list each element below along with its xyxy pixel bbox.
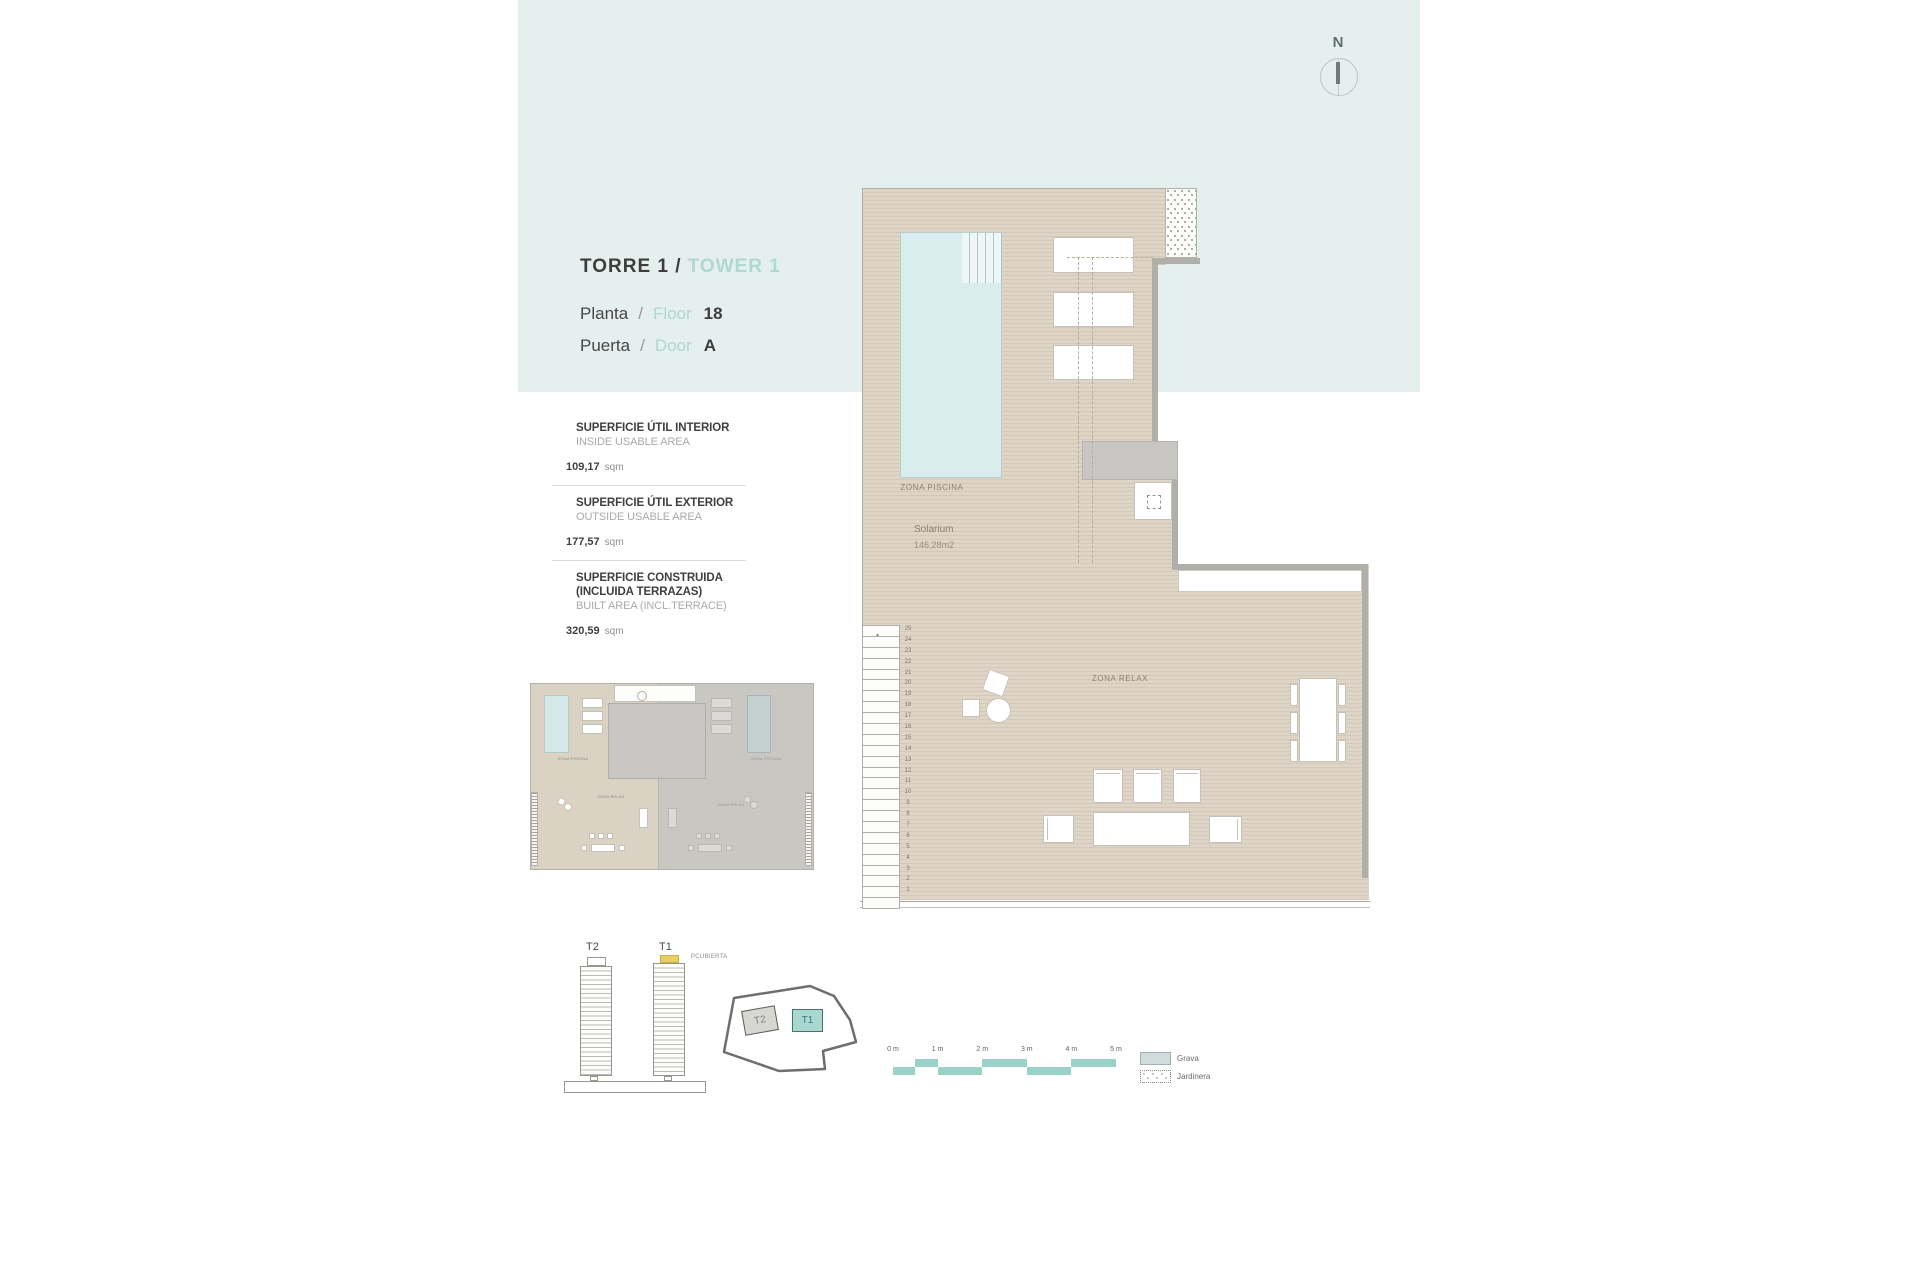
divider: [552, 485, 746, 486]
area-title-en: BUILT AREA (INCL.TERRACE): [552, 599, 746, 613]
wall: [1172, 480, 1178, 564]
page-title: TORRE 1 /TOWER 1: [580, 256, 781, 278]
ruler-number: 20: [901, 680, 915, 686]
mini-dining-table: [668, 808, 677, 828]
site-t2-label: T2: [753, 1014, 766, 1027]
sun-lounger: [1053, 345, 1134, 380]
ruler-row: 7: [863, 822, 899, 833]
ruler-number: 4: [901, 855, 915, 861]
floor-word: Floor: [653, 304, 692, 323]
deck-bottom-edge: [860, 901, 1370, 908]
ruler-row: 18: [863, 702, 899, 713]
compass-needle-head: [1336, 62, 1340, 84]
scale-label: 1 m: [932, 1046, 944, 1053]
scale-block: [982, 1059, 1027, 1067]
area-number: 320,59: [566, 625, 600, 637]
floor-value: 18: [704, 304, 723, 323]
title-block: TORRE 1 /TOWER 1 Planta/Floor18 Puerta/D…: [580, 256, 781, 356]
area-title-en: OUTSIDE USABLE AREA: [552, 510, 746, 524]
tower-t2-elevation: [580, 966, 612, 1076]
ruler-number: 15: [901, 735, 915, 741]
ruler-number: 5: [901, 844, 915, 850]
mini-armchair: [589, 833, 595, 839]
scale-bar: 0 m1 m2 m3 m4 m5 m: [885, 1046, 1130, 1080]
area-section-exterior: SUPERFICIE ÚTIL EXTERIOR OUTSIDE USABLE …: [552, 496, 746, 550]
puerta-label: Puerta: [580, 336, 630, 355]
floorplan-sheet: N TORRE 1 /TOWER 1 Planta/Floor18 Puerta…: [0, 0, 1920, 1280]
mini-pool-a: [544, 695, 569, 753]
mini-armchair: [705, 833, 711, 839]
ruler-row: 22: [863, 659, 899, 670]
wall: [1152, 264, 1158, 441]
ruler-number: 22: [901, 659, 915, 665]
mini-armchair: [598, 833, 604, 839]
dining-chair: [1290, 740, 1298, 762]
outdoor-shower: [1134, 482, 1172, 520]
tower-t2-label: T2: [586, 941, 599, 953]
mini-zona-relax-label: ZONA RELAX: [706, 802, 756, 807]
slash: /: [638, 304, 643, 323]
ruler-row: 21: [863, 670, 899, 681]
round-table: [986, 698, 1011, 723]
chair-back: [1136, 773, 1159, 774]
lounge-seat: [1043, 815, 1074, 843]
area-unit: sqm: [605, 462, 624, 473]
ruler-row: 12: [863, 768, 899, 779]
ruler-row: [863, 898, 899, 908]
site-tower-t1: T1: [792, 1009, 823, 1032]
stair-ruler: ▲ 25242322212019181716151413121110987654…: [862, 625, 900, 909]
ruler-row: 10: [863, 789, 899, 800]
legend-label-jardinera: Jardinera: [1177, 1072, 1210, 1081]
area-title-es2: (INCLUIDA TERRAZAS): [552, 585, 746, 599]
area-value: 177,57sqm: [552, 532, 746, 550]
ruler-row: 15: [863, 735, 899, 746]
ruler-row: 19: [863, 691, 899, 702]
mini-lounger: [711, 711, 732, 721]
area-title-es: SUPERFICIE CONSTRUIDA: [552, 571, 746, 585]
dining-table: [1299, 678, 1337, 762]
scale-block: [915, 1059, 937, 1067]
mini-zona-relax-label: ZONA RELAX: [586, 794, 636, 799]
mini-armchair: [696, 833, 702, 839]
ruler-row: 2: [863, 876, 899, 887]
scale-block: [938, 1067, 983, 1075]
scale-label: 2 m: [976, 1046, 988, 1053]
mini-armchair: [607, 833, 613, 839]
seat-back: [1237, 819, 1238, 840]
mini-roof-access: [614, 685, 696, 702]
side-table: [962, 699, 980, 717]
door-line: Puerta/DoorA: [580, 336, 781, 356]
ruler-number: 8: [901, 811, 915, 817]
pool-steps: [962, 233, 1002, 283]
ruler-number: 19: [901, 691, 915, 697]
mini-overview-plan: ZONA PISCINA ZONA RELAX ZONA PISCINA ZON…: [530, 683, 814, 870]
sun-lounger: [1053, 292, 1134, 327]
mini-seat: [726, 845, 732, 851]
scale-label: 5 m: [1110, 1046, 1122, 1053]
mini-planter-right: [805, 792, 812, 866]
mini-lounger: [582, 698, 603, 708]
legend-swatch-grava: [1140, 1052, 1171, 1065]
solarium-label: Solarium: [914, 524, 953, 535]
ruler-arrow-icon: ▲: [875, 632, 880, 638]
ruler-number: 23: [901, 648, 915, 654]
dining-chair: [1290, 684, 1298, 706]
area-number: 109,17: [566, 461, 600, 473]
ruler-row: 9: [863, 800, 899, 811]
wall: [1362, 570, 1368, 878]
planta-label: Planta: [580, 304, 628, 323]
lounge-seat: [1209, 816, 1242, 843]
mini-zona-piscina-label: ZONA PISCINA: [736, 756, 796, 761]
mini-zona-piscina-label: ZONA PISCINA: [543, 756, 603, 761]
mini-dining-table: [639, 808, 648, 828]
ruler-row: 14: [863, 746, 899, 757]
service-core: [1082, 441, 1178, 480]
ruler-row: 5: [863, 844, 899, 855]
ruler-number: 24: [901, 637, 915, 643]
area-title-es: SUPERFICIE ÚTIL EXTERIOR: [552, 496, 746, 510]
mini-pool-b: [747, 695, 771, 753]
ruler-number: 17: [901, 713, 915, 719]
scale-label: 3 m: [1021, 1046, 1033, 1053]
mini-coffee-table: [591, 844, 615, 852]
north-compass: N: [1318, 34, 1358, 98]
legend: Grava Jardinera: [1140, 1052, 1250, 1088]
ruler-row: 11: [863, 778, 899, 789]
shower-drain: [1147, 495, 1161, 509]
mini-lounger: [582, 724, 603, 734]
mini-coffee-table: [698, 844, 722, 852]
projection-dashed-line: [1078, 257, 1079, 563]
dining-chair: [1290, 712, 1298, 734]
door-word: Door: [655, 336, 692, 355]
ruler-number: 3: [901, 866, 915, 872]
compass-n-label: N: [1333, 34, 1344, 51]
mini-core: [608, 703, 706, 779]
ruler-row: 3: [863, 866, 899, 877]
ruler-number: 16: [901, 724, 915, 730]
seat-back: [1047, 818, 1048, 840]
area-section-built: SUPERFICIE CONSTRUIDA (INCLUIDA TERRAZAS…: [552, 571, 746, 639]
ruler-number: 2: [901, 876, 915, 882]
chair-back: [1176, 773, 1198, 774]
ruler-number: 10: [901, 789, 915, 795]
mini-seat: [688, 845, 694, 851]
ruler-row: 25: [863, 626, 899, 637]
mini-seat: [619, 845, 625, 851]
ruler-number: 13: [901, 757, 915, 763]
area-number: 177,57: [566, 536, 600, 548]
site-plan-outline: [712, 976, 862, 1076]
tower-base-plinth: [564, 1081, 706, 1093]
dining-chair: [1338, 740, 1346, 762]
door-value: A: [704, 336, 716, 355]
ruler-number: 11: [901, 778, 915, 784]
area-title-en: INSIDE USABLE AREA: [552, 435, 746, 449]
floor-line: Planta/Floor18: [580, 304, 781, 324]
ruler-row: 4: [863, 855, 899, 866]
area-unit: sqm: [605, 626, 624, 637]
solarium-area-value: 146,28m2: [914, 540, 954, 550]
scale-label: 4 m: [1066, 1046, 1078, 1053]
ruler-number: 14: [901, 746, 915, 752]
zona-piscina-label: ZONA PISCINA: [872, 483, 992, 492]
zona-relax-label: ZONA RELAX: [1060, 674, 1180, 683]
mini-lounger: [711, 724, 732, 734]
armchair: [1133, 769, 1162, 803]
scale-block: [1071, 1059, 1116, 1067]
mini-door-swing: [637, 691, 647, 701]
site-t1-label: T1: [802, 1015, 814, 1026]
armchair: [1173, 769, 1201, 803]
tower-t1-highlighted-floor: [660, 955, 679, 963]
scale-label: 0 m: [887, 1046, 899, 1053]
legend-swatch-jardinera: [1140, 1070, 1171, 1083]
area-section-interior: SUPERFICIE ÚTIL INTERIOR INSIDE USABLE A…: [552, 421, 746, 475]
armchair: [1093, 769, 1123, 803]
sun-lounger: [1053, 237, 1134, 273]
wall: [1152, 258, 1200, 264]
mini-lounger: [711, 698, 732, 708]
ruler-number: 12: [901, 768, 915, 774]
title-tower: TOWER 1: [688, 256, 781, 277]
ruler-number: 9: [901, 800, 915, 806]
ruler-row: 8: [863, 811, 899, 822]
tower-t2-cap: [587, 957, 606, 966]
mini-planter-left: [531, 792, 538, 866]
legend-label-grava: Grava: [1177, 1054, 1199, 1063]
projection-dashed-line: [1067, 257, 1153, 258]
coffee-table: [1093, 812, 1190, 846]
chair-back: [1096, 773, 1120, 774]
ruler-number: 21: [901, 670, 915, 676]
tower-t1-label: T1: [659, 941, 672, 953]
area-unit: sqm: [605, 537, 624, 548]
scale-block: [893, 1067, 915, 1075]
dining-chair: [1338, 712, 1346, 734]
ruler-row: 6: [863, 833, 899, 844]
title-torre: TORRE 1 /: [580, 256, 682, 277]
bench-strip: [1178, 570, 1362, 592]
stair-ruler-rows: 2524232221201918171615141312111098765432…: [863, 626, 899, 908]
mini-seat: [581, 845, 587, 851]
ruler-row: 1: [863, 887, 899, 898]
ruler-row: 20: [863, 680, 899, 691]
divider: [552, 560, 746, 561]
area-value: 320,59sqm: [552, 621, 746, 639]
ruler-row: 17: [863, 713, 899, 724]
ruler-number: 25: [901, 626, 915, 632]
mini-armchair: [714, 833, 720, 839]
projection-dashed-line: [1092, 257, 1093, 563]
ruler-row: 23: [863, 648, 899, 659]
dining-chair: [1338, 684, 1346, 706]
area-value: 109,17sqm: [552, 457, 746, 475]
slash: /: [640, 336, 645, 355]
mini-lounger: [582, 711, 603, 721]
ruler-number: 1: [901, 887, 915, 893]
ruler-row: 16: [863, 724, 899, 735]
ruler-number: 7: [901, 822, 915, 828]
tower-t1-elevation: [653, 963, 685, 1076]
surface-areas: SUPERFICIE ÚTIL INTERIOR INSIDE USABLE A…: [552, 421, 746, 639]
scale-block: [1027, 1067, 1072, 1075]
ruler-number: 18: [901, 702, 915, 708]
ruler-row: 13: [863, 757, 899, 768]
pcubierta-label: PCUBIERTA: [691, 954, 728, 960]
mini-round-table: [564, 803, 572, 811]
ruler-row: 24: [863, 637, 899, 648]
area-title-es: SUPERFICIE ÚTIL INTERIOR: [552, 421, 746, 435]
ruler-number: 6: [901, 833, 915, 839]
planter-top-right: [1165, 188, 1197, 258]
